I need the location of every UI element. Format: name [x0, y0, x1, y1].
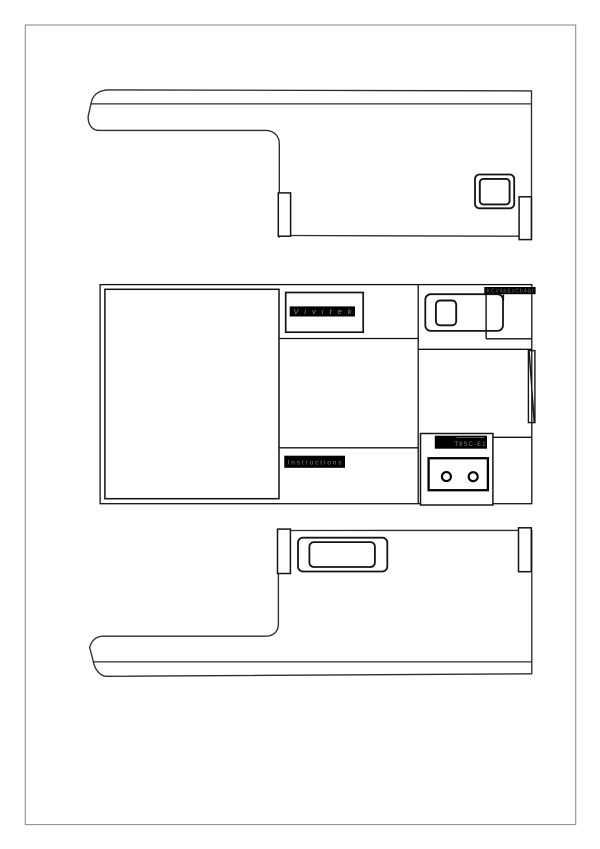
svg-text:T8SC-E1: T8SC-E1 — [455, 442, 487, 448]
svg-text:Instructions: Instructions — [288, 460, 343, 467]
